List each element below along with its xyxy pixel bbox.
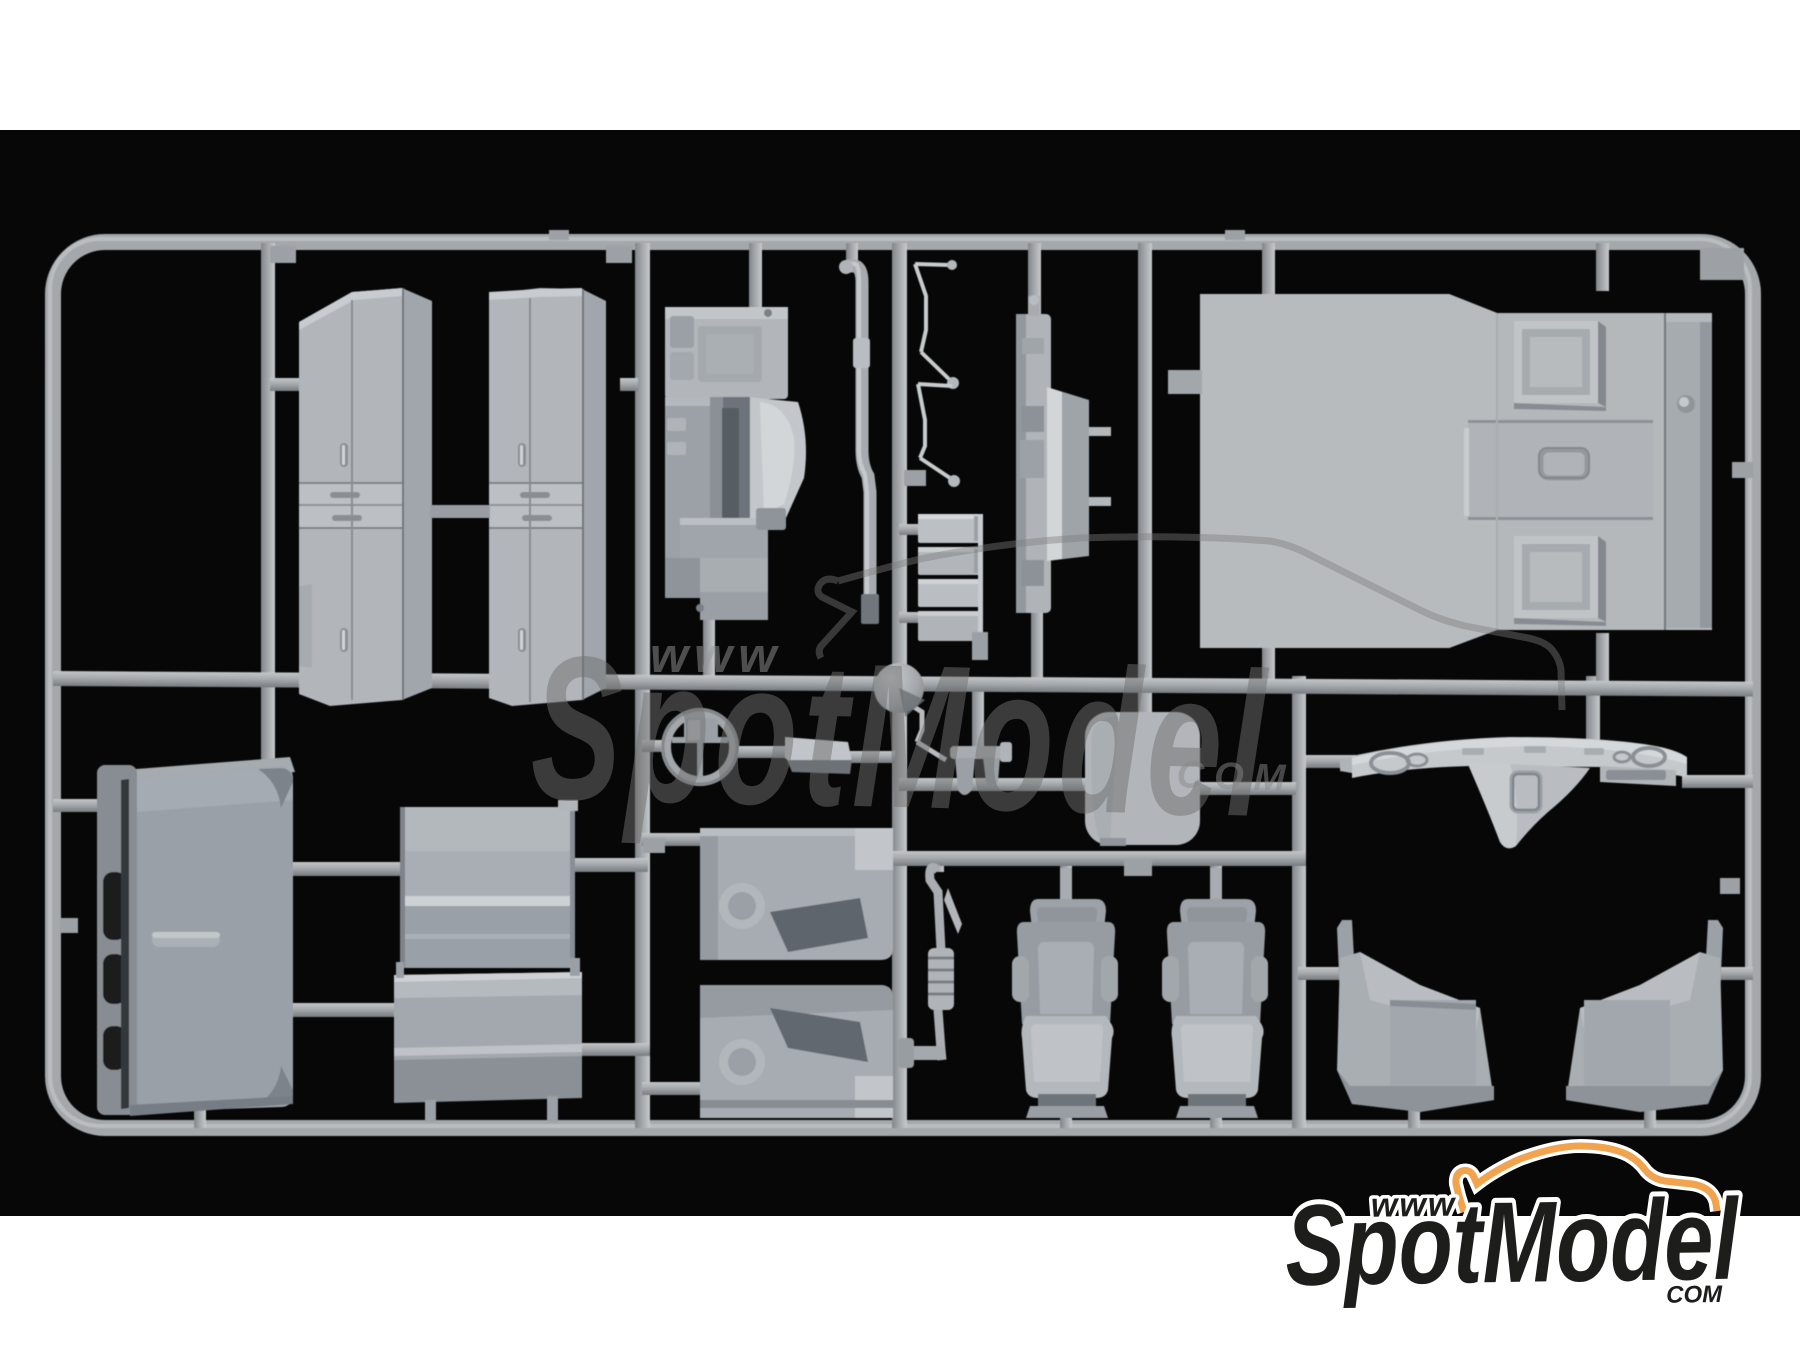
svg-text:COM: COM xyxy=(1176,754,1296,800)
svg-text:COM: COM xyxy=(1666,1281,1723,1309)
svg-text:SpotModel: SpotModel xyxy=(529,613,1273,860)
